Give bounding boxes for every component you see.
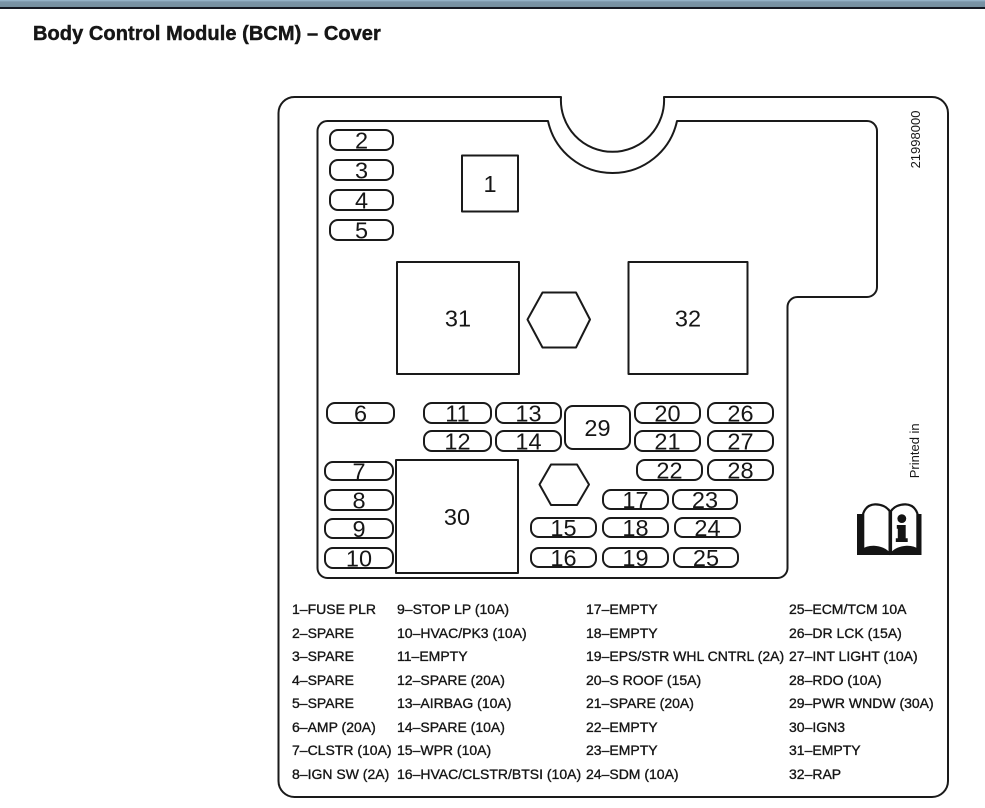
svg-text:5: 5 (355, 217, 368, 243)
svg-text:3: 3 (355, 157, 368, 183)
svg-text:1: 1 (483, 171, 496, 197)
svg-text:8: 8 (352, 487, 365, 513)
svg-text:16: 16 (550, 545, 576, 571)
svg-text:Printed in: Printed in (907, 423, 922, 478)
svg-text:6: 6 (354, 400, 367, 426)
svg-text:23: 23 (692, 487, 718, 513)
svg-text:21998000: 21998000 (908, 111, 923, 169)
svg-text:10: 10 (346, 545, 372, 571)
svg-text:4: 4 (355, 187, 368, 213)
svg-text:11: 11 (445, 400, 469, 426)
svg-text:15: 15 (550, 515, 576, 541)
svg-text:18: 18 (622, 515, 648, 541)
svg-text:2: 2 (355, 127, 368, 153)
svg-text:14: 14 (515, 428, 541, 454)
svg-text:7: 7 (352, 458, 365, 484)
svg-text:26: 26 (727, 400, 753, 426)
svg-text:30: 30 (444, 504, 470, 530)
svg-text:13: 13 (515, 400, 541, 426)
svg-text:31: 31 (445, 305, 471, 331)
svg-text:24: 24 (694, 515, 720, 541)
svg-text:12: 12 (444, 428, 470, 454)
svg-text:29: 29 (584, 415, 610, 441)
svg-text:20: 20 (654, 400, 680, 426)
svg-text:28: 28 (727, 457, 753, 483)
svg-text:25: 25 (693, 545, 719, 571)
svg-text:21: 21 (654, 428, 680, 454)
svg-text:17: 17 (622, 487, 648, 513)
svg-text:19: 19 (622, 545, 648, 571)
svg-text:9: 9 (352, 516, 365, 542)
svg-text:27: 27 (727, 428, 753, 454)
svg-text:32: 32 (675, 305, 701, 331)
svg-text:22: 22 (656, 457, 682, 483)
